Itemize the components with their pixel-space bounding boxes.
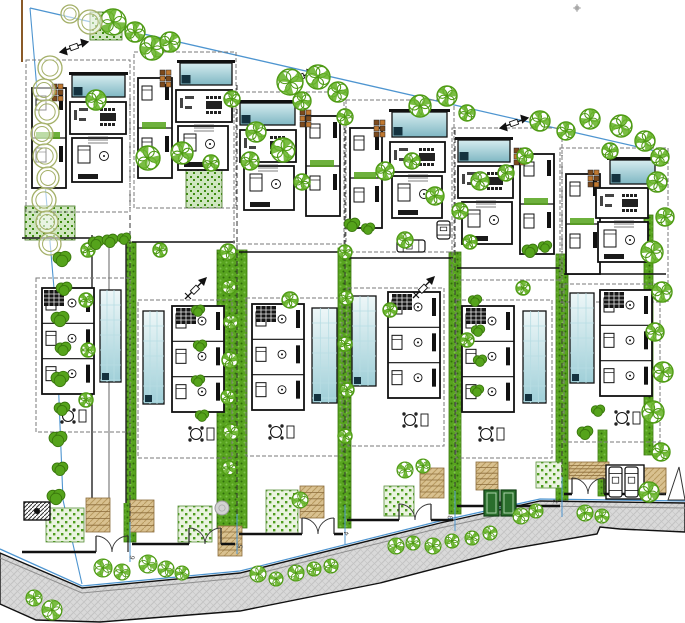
walkway-steps — [218, 526, 242, 556]
terrace-table-icon — [268, 424, 294, 439]
tree-icon — [224, 315, 238, 329]
upper-villa — [452, 128, 562, 280]
tree-icon — [642, 401, 664, 423]
tree-icon — [294, 174, 310, 190]
tree-icon — [452, 203, 468, 219]
tree-outline-icon — [61, 5, 79, 23]
tree-icon — [338, 245, 352, 259]
tree-icon — [246, 122, 266, 142]
bush-icon — [591, 405, 604, 417]
tree-icon — [426, 187, 444, 205]
tree-icon — [224, 91, 240, 107]
tree-icon — [222, 280, 236, 294]
tree-icon — [338, 337, 352, 351]
terrace-table-icon — [478, 426, 504, 441]
tree-icon — [220, 244, 236, 260]
tree-icon — [641, 241, 663, 263]
north-arrow-icon — [185, 277, 207, 299]
tree-icon — [269, 572, 283, 586]
bush-icon — [53, 251, 71, 266]
tree-icon — [153, 243, 167, 257]
tree-icon — [513, 508, 529, 524]
walkway-steps — [130, 500, 154, 532]
tree-icon — [437, 86, 457, 106]
entry-gate-icon — [96, 536, 128, 552]
tree-icon — [203, 155, 219, 171]
tree-icon — [292, 492, 308, 508]
tree-icon — [160, 32, 180, 52]
lap-pool — [143, 311, 164, 404]
tree-icon — [656, 208, 674, 226]
entry-gate-icon — [302, 518, 334, 534]
manhole-icon — [215, 501, 229, 515]
tree-icon — [646, 323, 664, 341]
terrace-table-icon — [614, 410, 640, 425]
tree-icon — [139, 555, 157, 573]
tree-icon — [580, 109, 600, 129]
tree-icon — [328, 82, 348, 102]
swimming-pool — [177, 62, 235, 86]
tree-icon — [282, 292, 298, 308]
bush-icon — [49, 431, 67, 446]
tree-icon — [557, 122, 575, 140]
walkway-steps — [476, 462, 498, 490]
tree-icon — [241, 152, 259, 170]
tree-icon — [517, 148, 533, 164]
parked-car-icon — [609, 467, 622, 497]
tree-icon — [306, 65, 330, 89]
tree-icon — [81, 343, 95, 357]
swimming-pool — [455, 139, 513, 163]
tree-icon — [416, 459, 430, 473]
tree-icon — [397, 232, 413, 248]
tree-icon — [406, 536, 420, 550]
tree-icon — [221, 390, 235, 404]
utility-pole-marker-icon — [59, 39, 89, 56]
lap-pool — [570, 293, 594, 383]
stairs-icon — [604, 292, 624, 308]
lawn — [46, 508, 84, 542]
bush-icon — [361, 223, 374, 235]
tree-icon — [653, 362, 673, 382]
tree-icon — [577, 505, 593, 521]
tree-icon — [94, 559, 112, 577]
tree-icon — [250, 566, 266, 582]
bush-icon — [344, 218, 360, 231]
tree-outline-icon — [32, 188, 56, 212]
tree-icon — [338, 429, 352, 443]
tree-icon — [79, 393, 93, 407]
tree-icon — [639, 482, 659, 502]
lap-pool — [352, 296, 376, 386]
lap-pool — [312, 308, 337, 403]
bush-icon — [522, 244, 538, 257]
tree-icon — [651, 148, 669, 166]
lap-pool — [523, 311, 546, 403]
tree-icon — [397, 462, 413, 478]
tree-icon — [79, 293, 93, 307]
tree-icon — [114, 564, 130, 580]
tree-icon — [136, 146, 160, 170]
stairs-icon — [466, 308, 486, 324]
tree-icon — [610, 115, 632, 137]
tree-icon — [125, 22, 145, 42]
tree-outline-icon — [35, 100, 59, 124]
tree-icon — [647, 172, 667, 192]
tree-icon — [293, 92, 311, 110]
tree-icon — [171, 142, 193, 164]
tree-icon — [288, 565, 304, 581]
parked-car-icon — [437, 221, 450, 239]
tree-outline-icon — [31, 123, 53, 145]
tree-icon — [324, 559, 338, 573]
tree-icon — [158, 561, 174, 577]
swimming-pool — [237, 102, 298, 126]
walkway-steps — [86, 498, 110, 532]
tree-icon — [409, 95, 431, 117]
tree-icon — [175, 566, 189, 580]
tree-icon — [100, 9, 126, 35]
tree-icon — [445, 534, 459, 548]
tree-outline-icon — [37, 167, 59, 189]
tree-icon — [471, 172, 489, 190]
lap-pool — [100, 290, 121, 382]
tree-icon — [529, 504, 543, 518]
tree-icon — [595, 509, 609, 523]
tree-icon — [463, 235, 477, 249]
tree-icon — [26, 590, 42, 606]
plot-number-label: 4 — [343, 531, 351, 537]
tree-icon — [602, 143, 618, 159]
tree-icon — [425, 538, 441, 554]
tree-icon — [337, 109, 353, 125]
tree-icon — [222, 461, 236, 475]
tree-icon — [86, 90, 106, 110]
tree-icon — [516, 281, 530, 295]
tree-outline-icon — [38, 56, 62, 80]
lower-villa — [246, 298, 342, 456]
plot-number-label: 6 — [129, 555, 137, 561]
tree-icon — [459, 105, 475, 121]
tree-icon — [339, 291, 353, 305]
tree-outline-icon — [33, 79, 55, 101]
tree-outline-icon — [78, 10, 102, 34]
terrace-table-icon — [188, 426, 214, 441]
driveway-gate-icon — [24, 502, 50, 520]
tree-icon — [271, 138, 295, 162]
tree-icon — [635, 131, 655, 151]
tree-icon — [483, 526, 497, 540]
small-marker-icon — [573, 4, 581, 12]
walkway-steps — [569, 462, 609, 479]
tree-icon — [307, 562, 321, 576]
terrace-table-icon — [402, 412, 428, 427]
stairs-icon — [256, 306, 276, 322]
tree-icon — [340, 383, 354, 397]
tree-icon — [388, 538, 404, 554]
parked-car-icon — [625, 467, 638, 497]
tree-outline-icon — [36, 211, 58, 233]
bush-icon — [195, 410, 208, 422]
site-plan-canvas: 654321 — [0, 0, 685, 623]
tree-icon — [222, 352, 238, 368]
plot-3 — [346, 100, 454, 446]
green-door-icon — [484, 490, 499, 516]
site-plan-drawing: 654321 — [0, 0, 685, 623]
tree-icon — [498, 165, 514, 181]
bush-icon — [577, 426, 593, 439]
tree-outline-icon — [33, 144, 57, 168]
ramp-marking — [668, 467, 685, 500]
tree-icon — [652, 282, 672, 302]
tree-icon — [383, 303, 397, 317]
tree-icon — [404, 153, 420, 169]
tree-icon — [277, 69, 303, 95]
tree-outline-icon — [39, 233, 61, 255]
bush-icon — [52, 462, 68, 475]
lower-villa — [456, 300, 552, 458]
utility-pole-marker-icon — [499, 115, 529, 132]
plot-number-label: 3 — [447, 515, 455, 521]
tree-icon — [530, 111, 550, 131]
tree-icon — [223, 424, 239, 440]
lawn — [536, 462, 562, 488]
garden-bed — [186, 166, 222, 208]
tree-icon — [376, 162, 394, 180]
tree-icon — [652, 443, 670, 461]
tree-icon — [42, 600, 62, 620]
bush-icon — [468, 295, 481, 307]
tree-icon — [465, 531, 479, 545]
tree-icon — [460, 333, 474, 347]
